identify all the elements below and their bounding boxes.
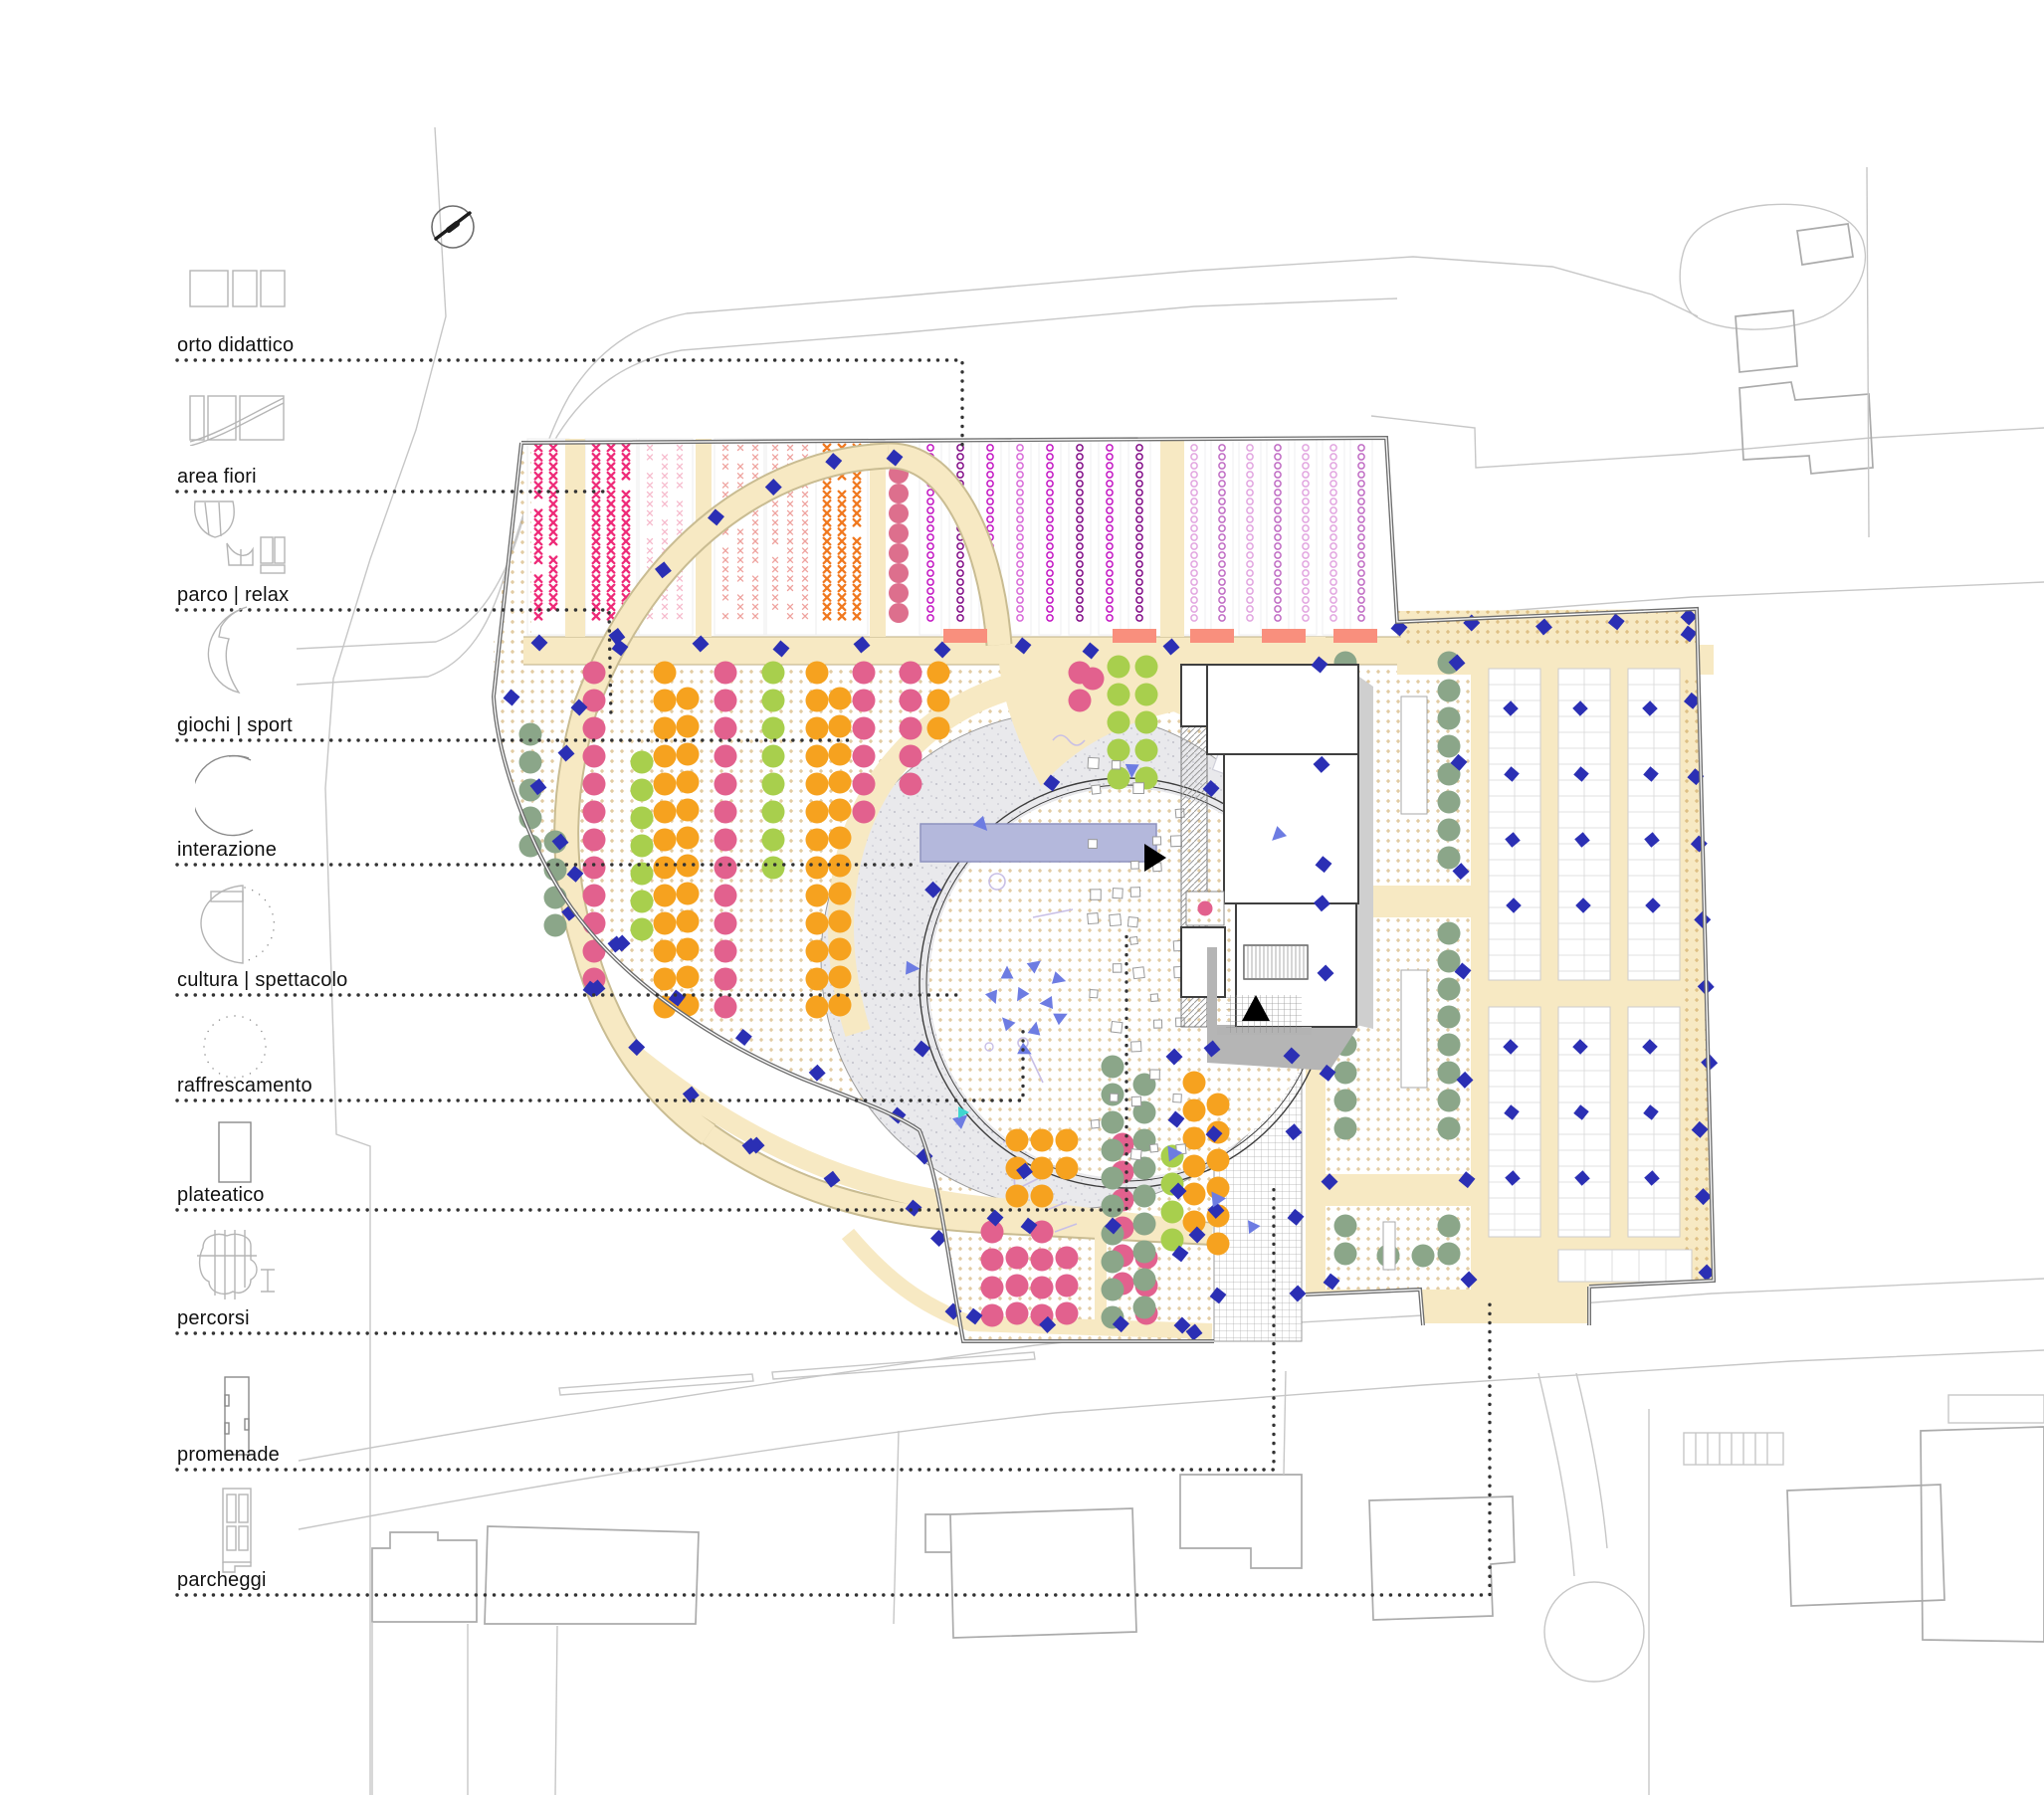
- interazione-icon: [195, 752, 305, 842]
- context-building: [485, 1526, 699, 1624]
- masterplan-page: orto didattico area fiori parco | relax …: [0, 0, 2044, 1795]
- context-building: [1369, 1496, 1515, 1620]
- orto-didattico-icon: [189, 267, 299, 314]
- courtyard-tree: [1198, 901, 1213, 916]
- context-building: [1736, 310, 1797, 372]
- stage-platform: [920, 824, 1156, 862]
- legend-label-interazione: interazione: [177, 839, 277, 862]
- north-indicator: [432, 206, 474, 248]
- louver-roof: [1244, 945, 1308, 979]
- garden-bed-band: [523, 439, 1386, 637]
- cultura-spettacolo-icon: [195, 880, 314, 971]
- area-fiori-icon: [189, 388, 299, 446]
- legend-label-parcheggi: parcheggi: [177, 1569, 267, 1592]
- plateatico-icon: [211, 1120, 281, 1186]
- legend-label-orto-didattico: orto didattico: [177, 334, 294, 357]
- context-parking-comb: [1684, 1433, 1783, 1465]
- context-building: [1739, 382, 1873, 474]
- legend-label-cultura-spettacolo: cultura | spettacolo: [177, 969, 348, 992]
- legend-label-parco-relax: parco | relax: [177, 584, 289, 607]
- parcheggi-icon: [211, 1487, 281, 1580]
- context-building: [1797, 224, 1853, 265]
- legend-label-percorsi: percorsi: [177, 1307, 250, 1330]
- context-building: [372, 1532, 477, 1622]
- raffrescamento-icon: [199, 1011, 289, 1085]
- parco-relax-icon: [189, 499, 308, 579]
- legend-label-area-fiori: area fiori: [177, 466, 257, 489]
- legend-label-promenade: promenade: [177, 1444, 280, 1467]
- context-building: [1180, 1475, 1302, 1568]
- context-building: [1921, 1427, 2044, 1642]
- parking-stalls: [1489, 669, 1692, 1282]
- legend-label-raffrescamento: raffrescamento: [177, 1075, 312, 1097]
- giochi-sport-icon: [195, 605, 305, 697]
- context-building: [925, 1508, 1136, 1638]
- legend-label-plateatico: plateatico: [177, 1184, 265, 1207]
- percorsi-icon: [195, 1230, 305, 1309]
- legend-label-giochi-sport: giochi | sport: [177, 714, 293, 737]
